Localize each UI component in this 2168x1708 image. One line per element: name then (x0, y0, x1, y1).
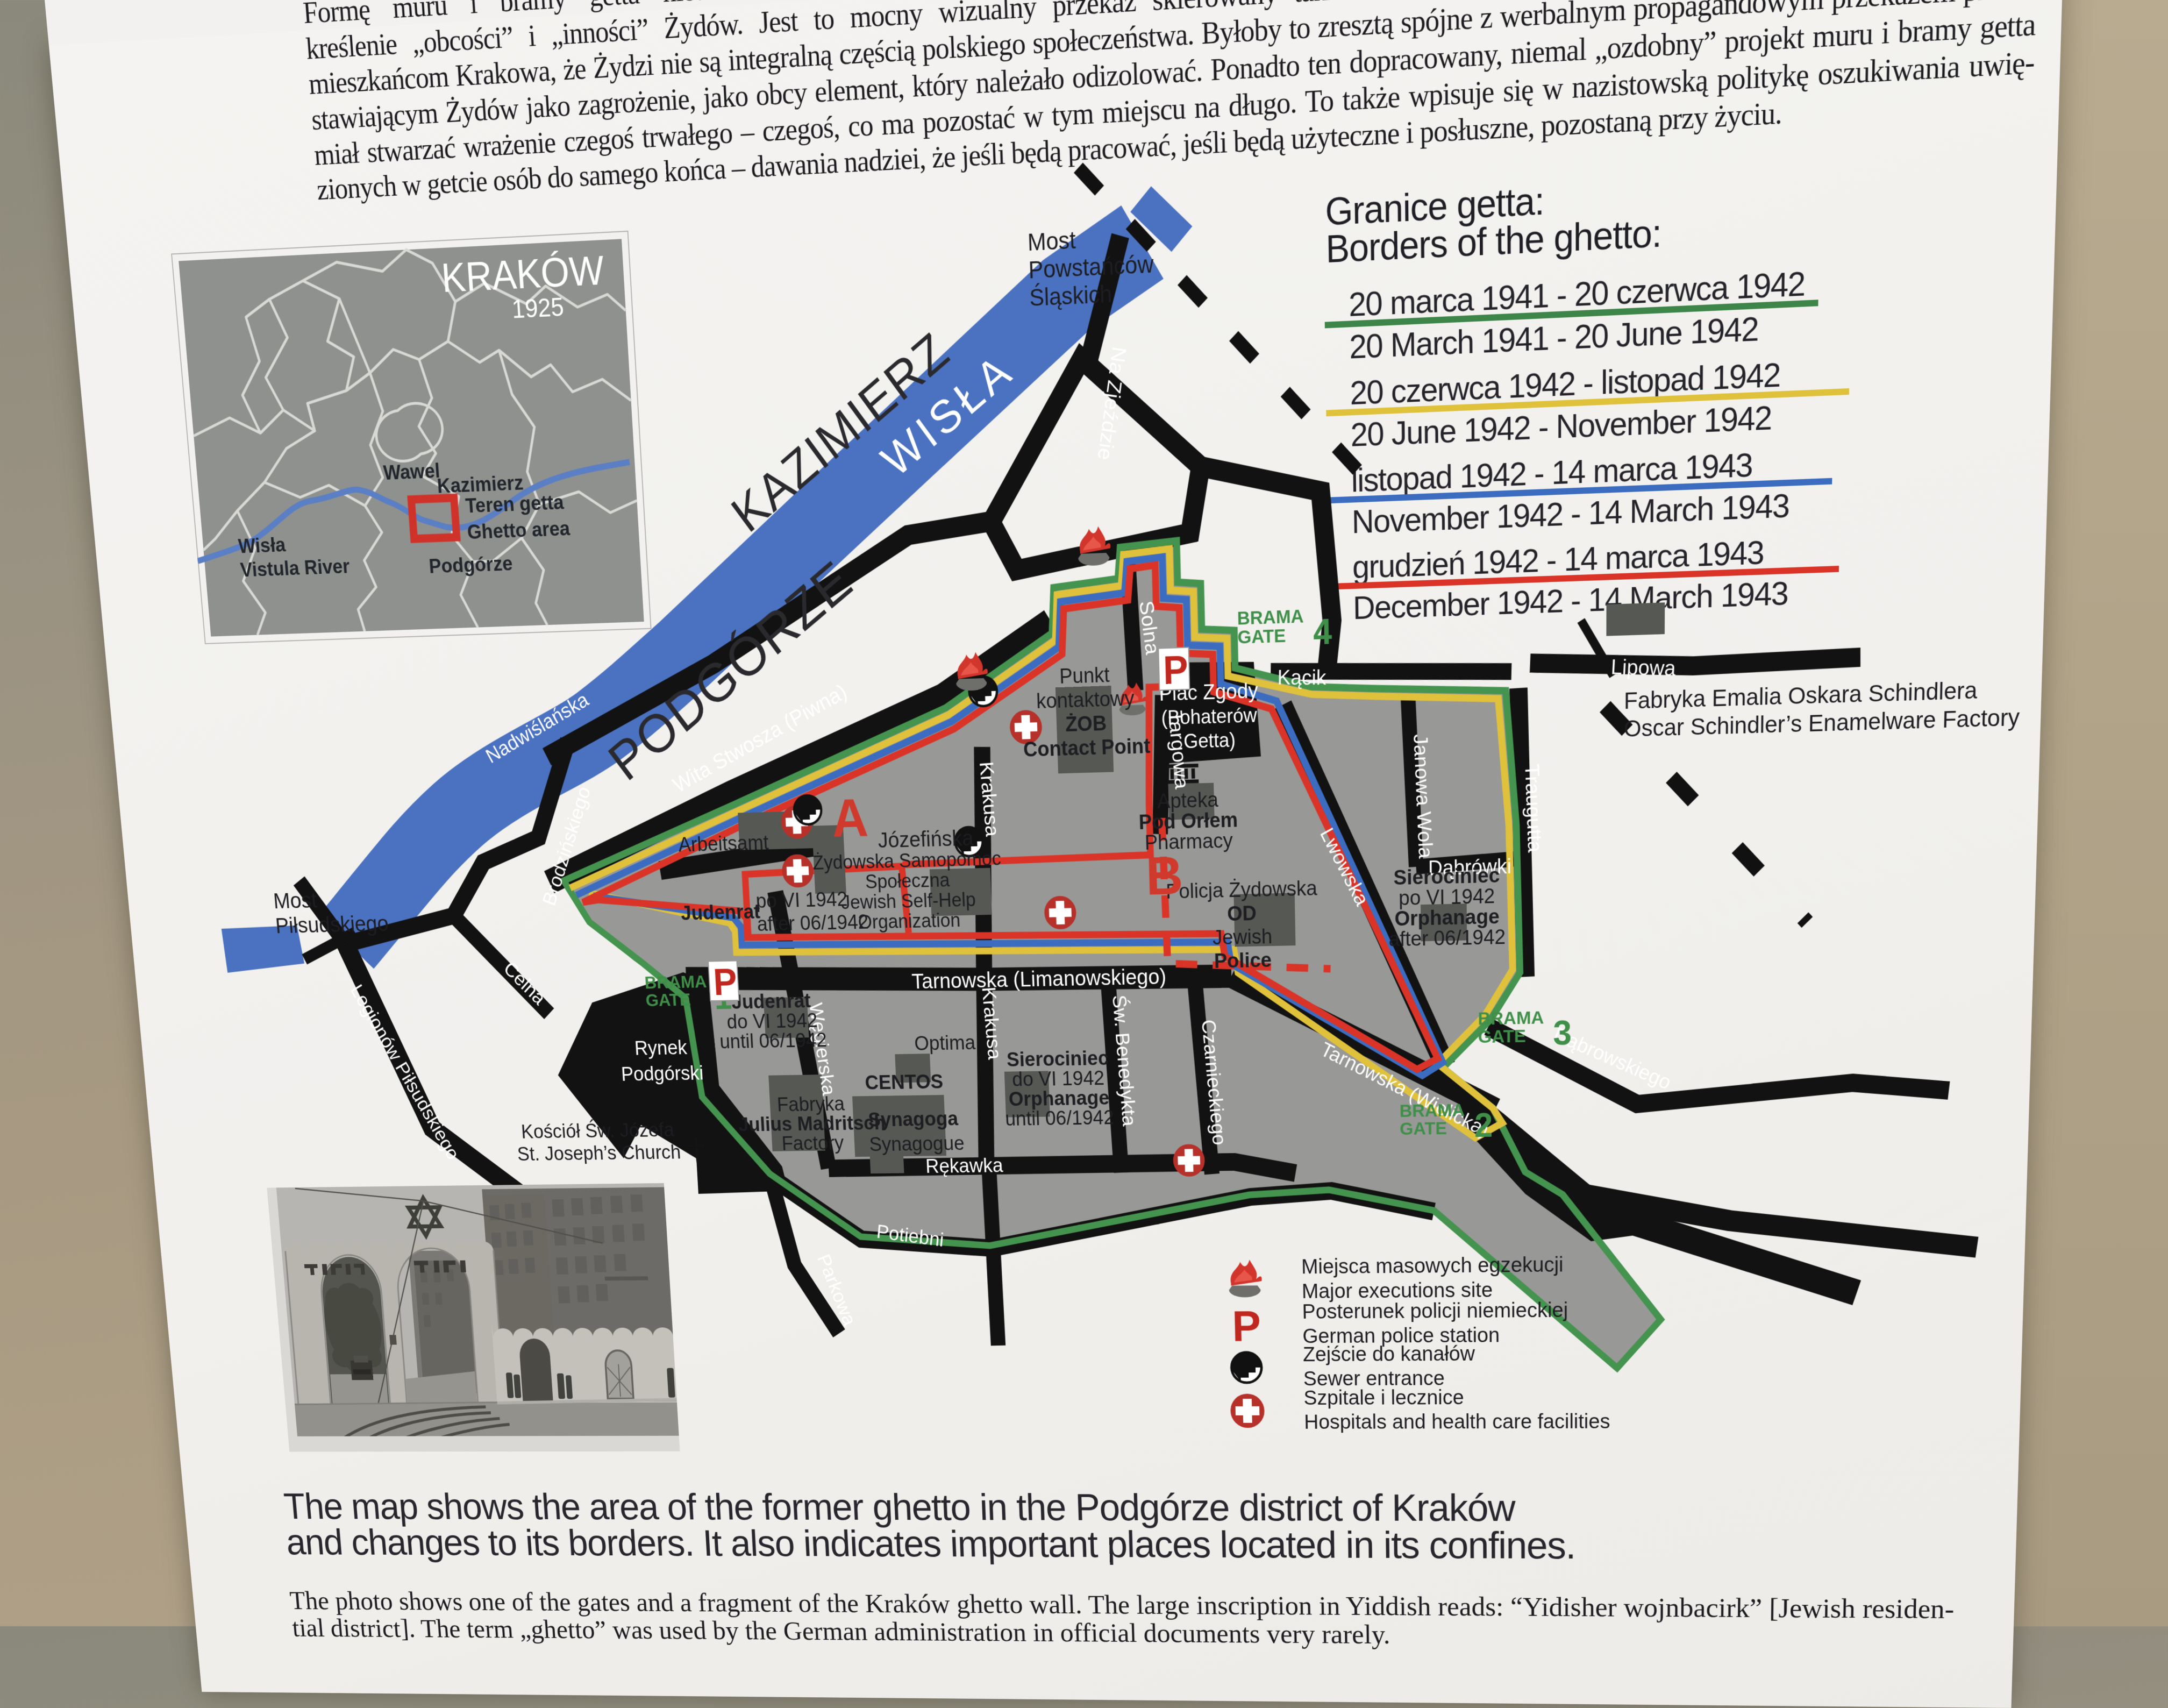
svg-text:St. Joseph’s Church: St. Joseph’s Church (517, 1142, 682, 1165)
svg-text:Optima: Optima (914, 1032, 976, 1055)
svg-text:ŻOB: ŻOB (1065, 712, 1107, 736)
svg-text:Szpitale i lecznice: Szpitale i lecznice (1303, 1386, 1464, 1409)
svg-text:Organization: Organization (858, 909, 961, 933)
svg-text:Police: Police (1214, 949, 1272, 973)
svg-text:Śląskich: Śląskich (1029, 280, 1112, 311)
svg-text:1925: 1925 (511, 292, 565, 324)
svg-text:3: 3 (1553, 1014, 1572, 1052)
svg-text:Piłsudskiego: Piłsudskiego (274, 911, 389, 938)
svg-text:2: 2 (1474, 1106, 1493, 1144)
svg-text:Factory: Factory (781, 1133, 844, 1155)
svg-text:until 06/1942: until 06/1942 (1005, 1107, 1115, 1130)
svg-text:Posterunek policji niemieckiej: Posterunek policji niemieckiej (1302, 1299, 1568, 1323)
svg-text:BRAMA: BRAMA (1400, 1100, 1465, 1121)
svg-text:Zejście do kanałów: Zejście do kanałów (1303, 1343, 1475, 1366)
svg-text:Parkowa: Parkowa (813, 1251, 860, 1329)
svg-text:Ghetto area: Ghetto area (467, 517, 571, 543)
svg-text:Arbeitsamt: Arbeitsamt (678, 832, 769, 857)
svg-text:Punkt: Punkt (1059, 664, 1110, 688)
svg-text:Jewish: Jewish (1213, 926, 1273, 949)
svg-text:GATE: GATE (1478, 1026, 1526, 1047)
svg-text:P: P (1231, 1302, 1261, 1351)
svg-text:Teren getta: Teren getta (465, 490, 565, 517)
svg-text:Most: Most (1027, 226, 1076, 256)
svg-text:Judenrat: Judenrat (680, 901, 761, 924)
svg-text:CENTOS: CENTOS (865, 1071, 944, 1094)
svg-text:Hospitals and health care faci: Hospitals and health care facilities (1304, 1411, 1610, 1434)
svg-text:Traugutta: Traugutta (1520, 763, 1545, 853)
svg-text:A: A (830, 788, 869, 849)
svg-text:Lipowa: Lipowa (1610, 656, 1677, 681)
svg-text:Most: Most (273, 888, 318, 913)
svg-text:Miejsca masowych egzekucji: Miejsca masowych egzekucji (1301, 1254, 1564, 1278)
svg-text:Kościół Św. Józefa: Kościół Św. Józefa (520, 1118, 675, 1143)
svg-text:P: P (712, 961, 738, 1003)
svg-text:Podgórski: Podgórski (621, 1063, 704, 1086)
svg-text:after 06/1942: after 06/1942 (1388, 926, 1506, 951)
svg-text:Vistula River: Vistula River (239, 555, 351, 581)
svg-text:OD: OD (1227, 902, 1257, 926)
svg-text:after 06/1942: after 06/1942 (757, 911, 869, 936)
svg-text:Rynek: Rynek (634, 1037, 688, 1059)
svg-text:Getta): Getta) (1183, 729, 1236, 753)
svg-text:kontaktowy: kontaktowy (1036, 687, 1135, 713)
svg-text:GATE: GATE (1400, 1119, 1447, 1139)
svg-text:Synagogue: Synagogue (869, 1133, 965, 1156)
svg-text:GATE: GATE (645, 990, 691, 1010)
svg-text:Tarnowska (Limanowskiego): Tarnowska (Limanowskiego) (911, 965, 1167, 993)
svg-text:until 06/1942: until 06/1942 (719, 1029, 827, 1053)
svg-text:Celna: Celna (500, 958, 550, 1009)
svg-text:Policja Żydowska: Policja Żydowska (1166, 877, 1318, 903)
svg-text:P: P (1163, 648, 1189, 693)
svg-text:Legionów Piłsudskiego: Legionów Piłsudskiego (346, 981, 463, 1163)
svg-text:Kącik: Kącik (1277, 666, 1327, 690)
svg-text:GATE: GATE (1237, 625, 1286, 648)
svg-text:KRAKÓW: KRAKÓW (440, 248, 605, 301)
svg-text:B: B (1145, 845, 1184, 906)
svg-text:4: 4 (1313, 611, 1332, 652)
svg-text:Contact Point: Contact Point (1023, 735, 1151, 762)
svg-text:†: † (687, 1130, 707, 1172)
svg-text:Wawel: Wawel (382, 459, 440, 484)
svg-text:po VI 1942: po VI 1942 (755, 888, 848, 913)
svg-text:Wisła: Wisła (238, 533, 287, 558)
svg-text:Rękawka: Rękawka (925, 1155, 1003, 1178)
svg-text:Podgórze: Podgórze (428, 552, 513, 578)
svg-text:(Bohaterów: (Bohaterów (1161, 704, 1258, 729)
